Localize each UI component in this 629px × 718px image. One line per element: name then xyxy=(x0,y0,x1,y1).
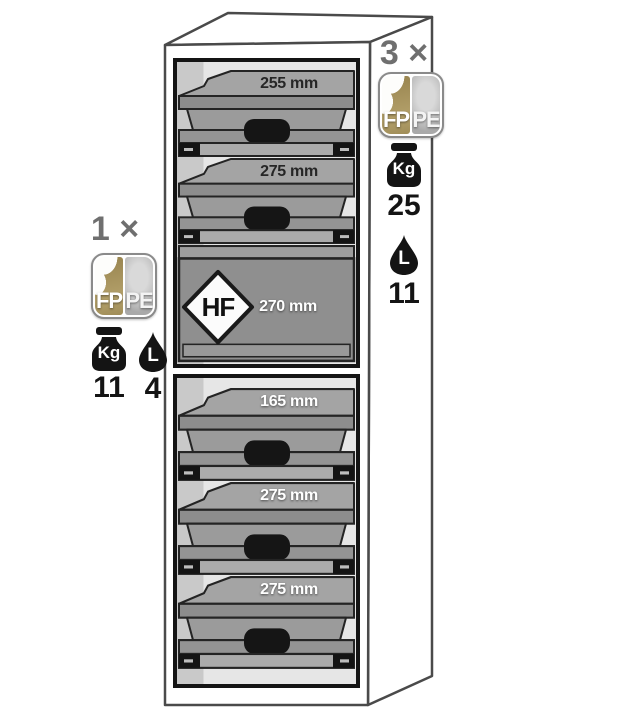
fp-label: FP xyxy=(96,290,122,315)
liquid-drop-icon: L xyxy=(138,331,168,373)
tray-depth-label: 275 mm xyxy=(233,581,345,599)
volume-value: 11 xyxy=(388,278,420,310)
badge-fp-half: FP xyxy=(95,257,123,315)
weight-unit-label: Kg xyxy=(385,159,423,179)
annotation-left: 1 × FP PE Kg 11 xyxy=(84,212,164,405)
liquid-drop-icon: L xyxy=(389,234,419,276)
badge-fp-half: FP xyxy=(382,76,410,134)
pullout-shelf: 275 mm xyxy=(177,576,356,670)
weight-icon: Kg xyxy=(385,142,423,188)
tray-depth-label: 275 mm xyxy=(233,487,345,505)
fp-label: FP xyxy=(383,109,409,134)
count-label: 3 × xyxy=(380,36,428,70)
weight-value: 25 xyxy=(387,190,420,222)
pullout-shelf: 165 mm xyxy=(177,388,356,482)
tray-depth-label: 165 mm xyxy=(233,393,345,411)
pe-label: PE xyxy=(412,109,439,134)
material-badge: FP PE xyxy=(91,253,157,319)
sump-depth-label: 270 mm xyxy=(243,298,333,316)
tray-depth-label: 255 mm xyxy=(233,75,345,93)
weight-icon: Kg xyxy=(90,326,128,372)
material-badge: FP PE xyxy=(378,72,444,138)
cabinet-interior: 255 mm 275 mm HF 270 mm 165 mm xyxy=(173,58,360,688)
pullout-shelf: 255 mm xyxy=(177,70,356,158)
weight-value: 11 xyxy=(93,372,125,404)
badge-pe-half: PE xyxy=(412,76,440,134)
sump-tray: HF 270 mm xyxy=(177,245,356,364)
badge-pe-half: PE xyxy=(125,257,153,315)
bottom-compartment: 165 mm 275 mm 275 mm xyxy=(173,374,360,688)
volume-value: 4 xyxy=(145,373,162,405)
tray-depth-label: 275 mm xyxy=(233,163,345,181)
top-compartment: 255 mm 275 mm HF 270 mm xyxy=(173,58,360,368)
weight-unit-label: Kg xyxy=(90,343,128,363)
pullout-shelf: 275 mm xyxy=(177,158,356,245)
pe-label: PE xyxy=(125,290,152,315)
product-diagram: 255 mm 275 mm HF 270 mm 165 mm xyxy=(0,0,629,718)
volume-unit-label: L xyxy=(389,249,419,269)
pullout-shelf: 275 mm xyxy=(177,482,356,576)
count-label: 1 × xyxy=(91,212,139,246)
volume-unit-label: L xyxy=(138,346,168,366)
